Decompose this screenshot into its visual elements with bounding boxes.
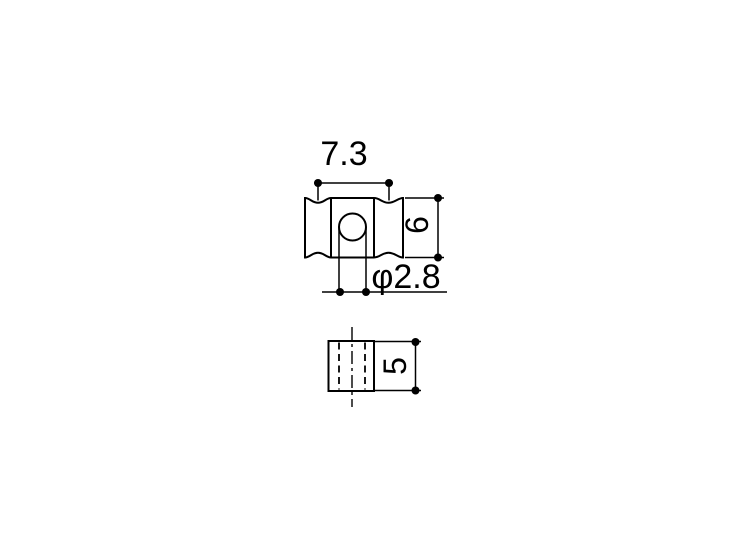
dimension-label-side-height: 5 [377,357,413,375]
dimension-width: 7.3 [314,135,393,201]
side-view [329,327,375,407]
dimension-label-width: 7.3 [320,135,367,173]
dimension-side-height: 5 [374,338,421,395]
technical-drawing: 7.3 6 φ2.8 [0,0,730,548]
side-view-outline [329,341,375,391]
dimension-dot [412,338,420,346]
dimension-dot [412,387,420,395]
dimension-label-height: 6 [399,216,435,234]
front-view [305,197,403,259]
front-view-bottom-edge [305,253,403,258]
drawing-canvas: 7.3 6 φ2.8 [0,0,730,548]
dimension-dot [385,179,393,187]
dimension-dot [336,288,344,296]
dimension-dot [362,288,370,296]
dimension-dot [314,179,322,187]
hole-circle [339,214,366,241]
dimension-label-hole: φ2.8 [371,258,440,296]
dimension-height: 6 [399,194,444,262]
dimension-hole-diameter: φ2.8 [322,227,447,296]
dimension-dot [434,194,442,202]
